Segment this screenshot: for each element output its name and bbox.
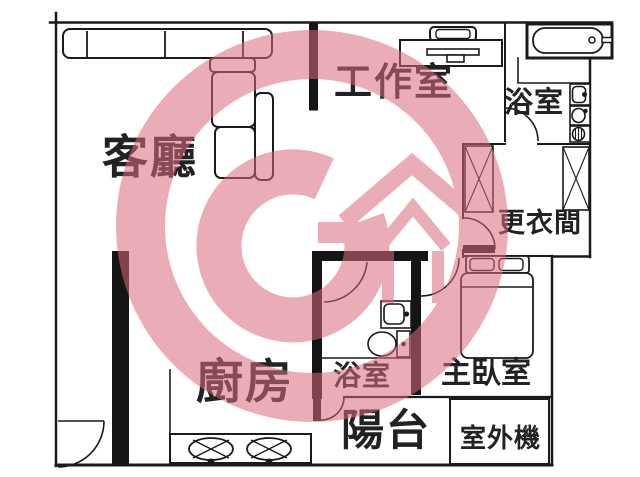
room-label-balcony: 陽台 (341, 410, 431, 453)
floor-plan: 客廳 工作室 浴室 更衣間 廚房 浴室 主臥室 陽台 室外機 (0, 0, 640, 477)
room-labels: 客廳 工作室 浴室 更衣間 廚房 浴室 主臥室 陽台 室外機 (0, 0, 640, 477)
room-label-ac-unit: 室外機 (460, 425, 541, 451)
room-label-bathroom-top: 浴室 (504, 89, 564, 118)
room-label-studio: 工作室 (334, 64, 454, 102)
room-label-bathroom-bottom: 浴室 (333, 362, 391, 390)
room-label-master-bedroom: 主臥室 (441, 359, 531, 389)
room-label-dressing-room: 更衣間 (498, 210, 582, 237)
room-label-living-room: 客廳 (102, 134, 198, 180)
room-label-kitchen: 廚房 (196, 358, 294, 405)
